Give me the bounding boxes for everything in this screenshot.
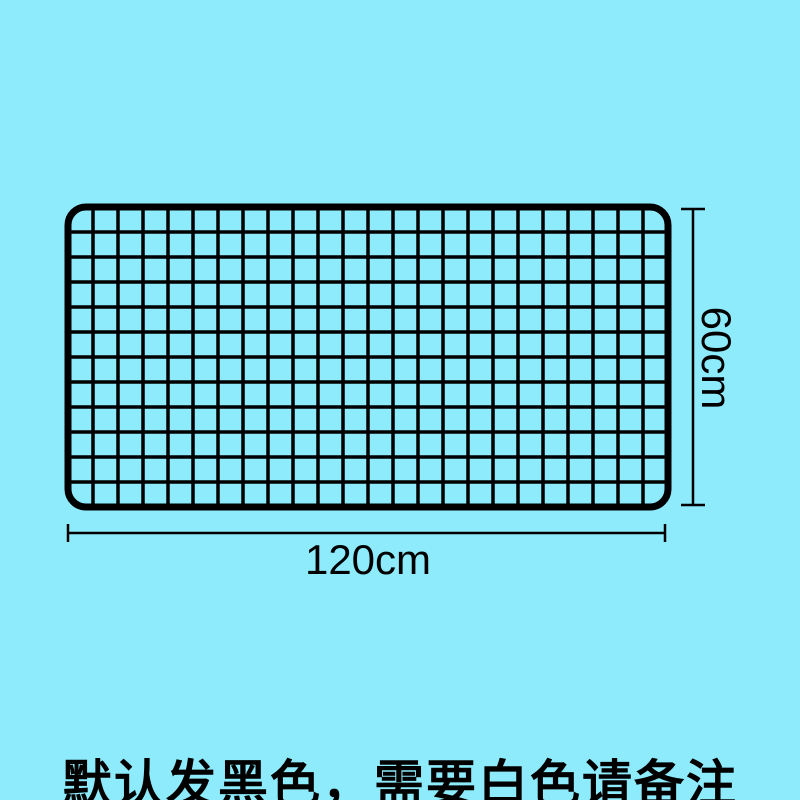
color-note-text: 默认发黑色，需要白色请备注 — [0, 744, 800, 800]
product-diagram-canvas: 120cm 60cm 默认发黑色，需要白色请备注 — [0, 0, 800, 800]
width-dimension-label: 120cm — [305, 539, 431, 581]
height-dimension-label: 60cm — [695, 307, 737, 410]
grid-mesh-lines — [68, 207, 668, 507]
wire-grid-diagram — [0, 0, 800, 800]
